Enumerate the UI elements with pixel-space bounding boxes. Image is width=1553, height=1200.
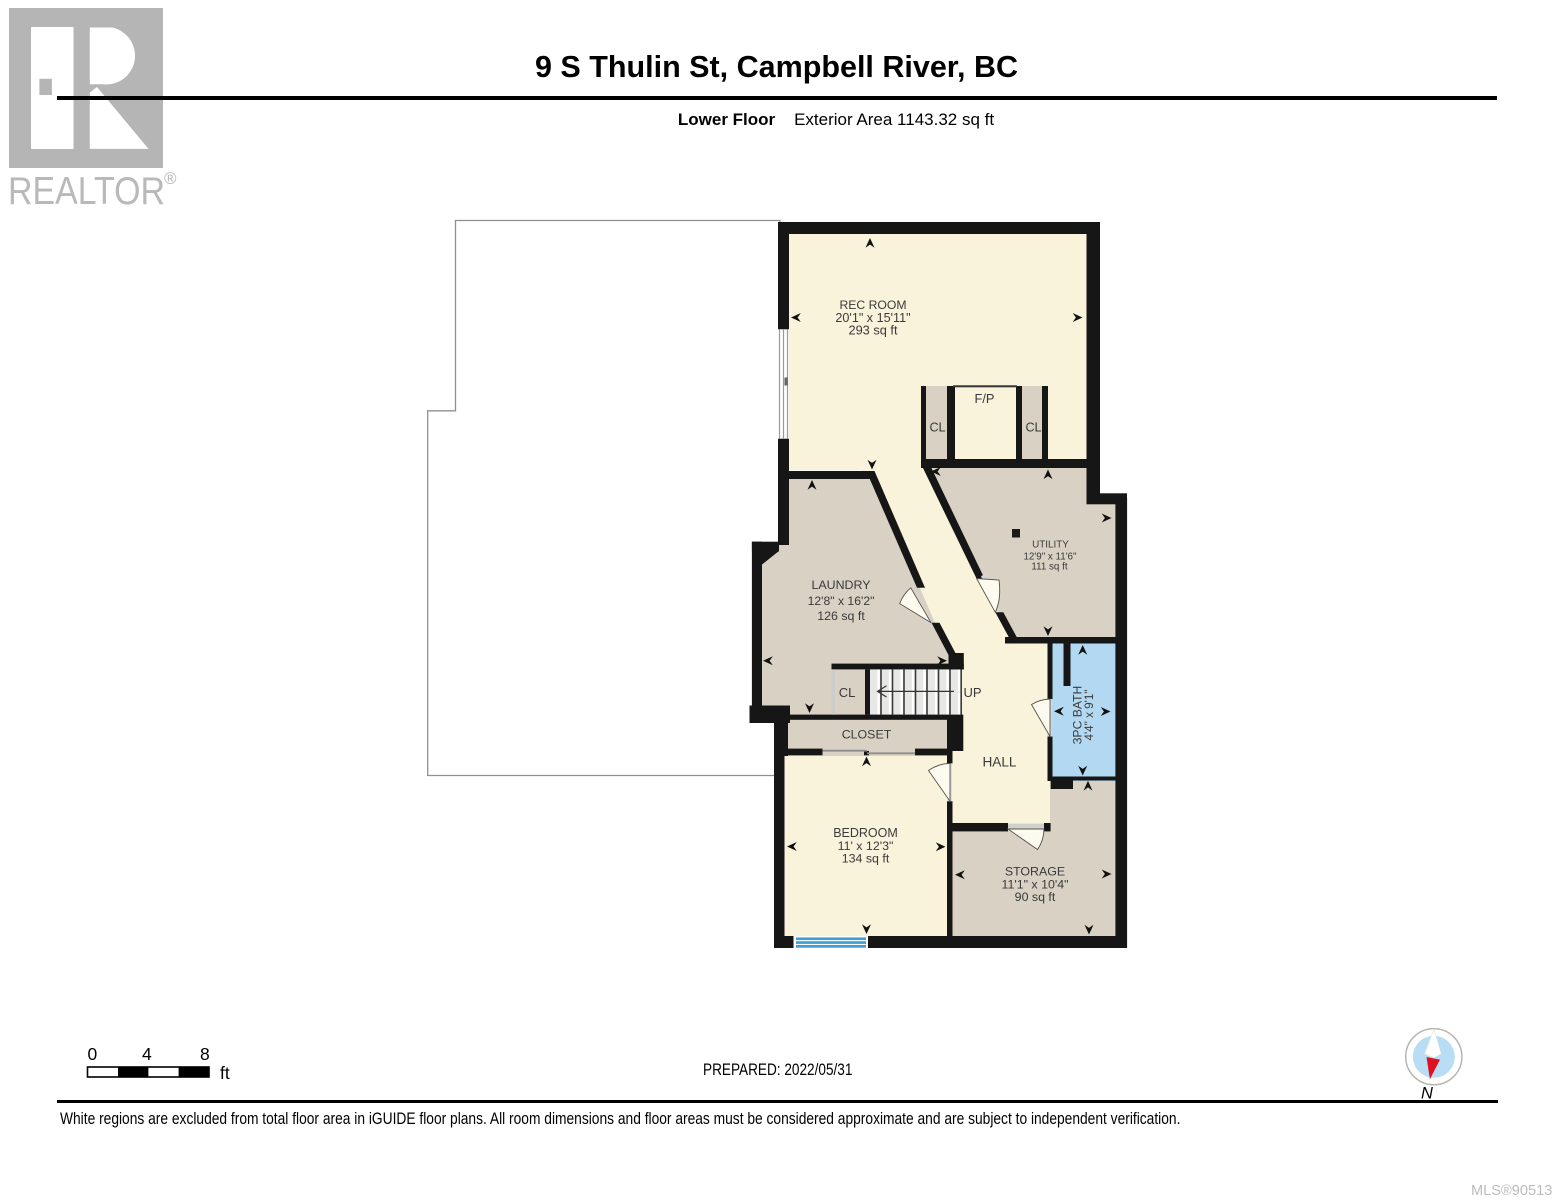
svg-text:LAUNDRY: LAUNDRY xyxy=(812,578,871,592)
svg-text:CLOSET: CLOSET xyxy=(842,728,892,742)
svg-text:ft: ft xyxy=(220,1063,230,1083)
svg-text:126 sq ft: 126 sq ft xyxy=(817,609,865,623)
svg-text:134 sq ft: 134 sq ft xyxy=(842,852,890,866)
svg-text:BEDROOM: BEDROOM xyxy=(833,826,898,840)
svg-text:HALL: HALL xyxy=(982,755,1016,770)
svg-text:CL: CL xyxy=(1025,421,1041,435)
svg-text:293 sq ft: 293 sq ft xyxy=(848,323,898,338)
svg-text:12'8" x 16'2": 12'8" x 16'2" xyxy=(808,594,875,608)
svg-text:90 sq ft: 90 sq ft xyxy=(1015,890,1056,904)
svg-text:0: 0 xyxy=(88,1044,98,1064)
svg-text:UTILITY: UTILITY xyxy=(1032,540,1069,551)
svg-text:CL: CL xyxy=(929,421,945,435)
svg-text:8: 8 xyxy=(200,1044,210,1064)
svg-text:CL: CL xyxy=(839,685,856,700)
svg-text:111 sq ft: 111 sq ft xyxy=(1031,562,1067,573)
svg-text:4'4" x 9'1": 4'4" x 9'1" xyxy=(1083,689,1096,740)
svg-text:F/P: F/P xyxy=(975,391,995,406)
svg-text:STORAGE: STORAGE xyxy=(1005,865,1065,879)
svg-text:UP: UP xyxy=(964,685,982,700)
svg-text:4: 4 xyxy=(142,1044,152,1064)
svg-text:REC ROOM: REC ROOM xyxy=(839,298,906,312)
